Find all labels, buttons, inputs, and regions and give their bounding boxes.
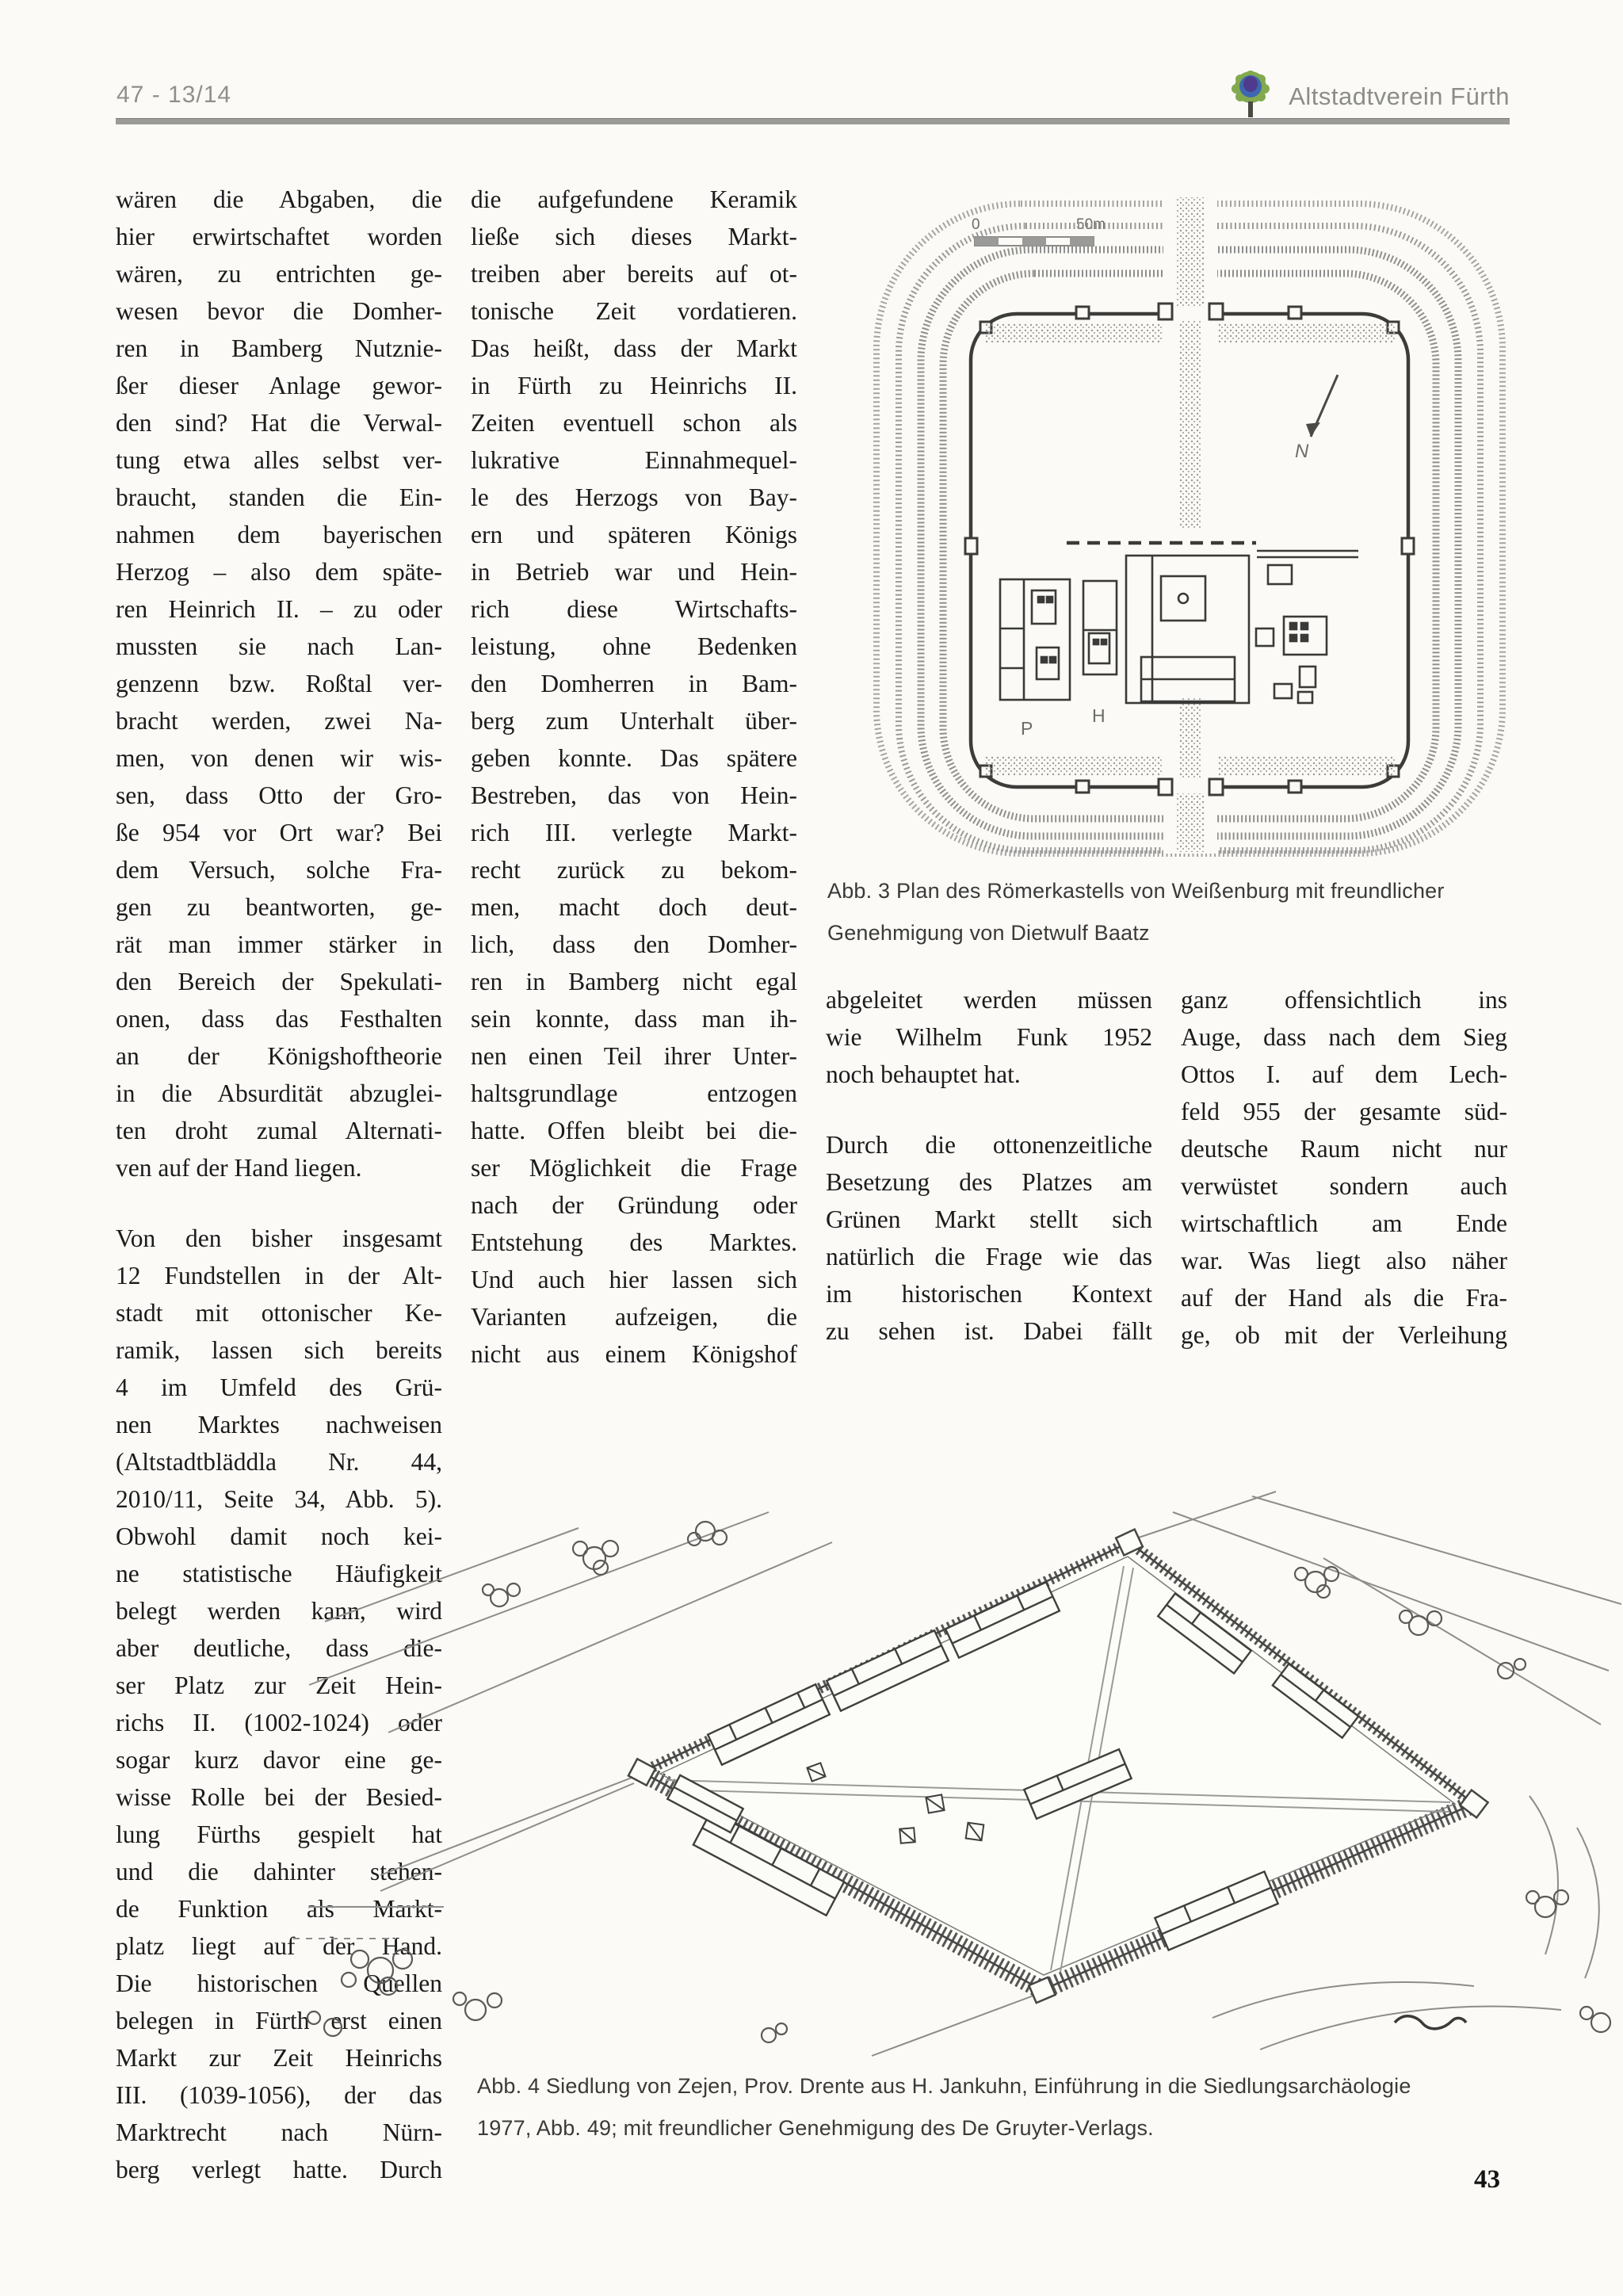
siedlung-drawing-figure — [262, 1463, 1621, 2059]
text-line: berg zum Unterhalt über- — [471, 702, 797, 739]
text-line: treiben aber bereits auf ot- — [471, 255, 797, 292]
text-column-4: ganz offensichtlich insAuge, dass nach d… — [1181, 981, 1507, 1354]
text-line: Marktrecht nach Nürn- — [116, 2114, 442, 2151]
text-line: sein konnte, dass man ih- — [471, 1000, 797, 1037]
text-line: war. Was liegt also näher — [1181, 1242, 1507, 1279]
page-number: 43 — [1474, 2165, 1500, 2195]
altstadtverein-tree-logo — [1230, 70, 1273, 120]
text-line: noch behauptet hat. — [826, 1056, 1152, 1093]
figure4-caption: Abb. 4 Siedlung von Zejen, Prov. Drente … — [477, 2065, 1602, 2149]
text-line: recht zurück zu bekom- — [471, 851, 797, 888]
text-line: wirtschaftlich am Ende — [1181, 1205, 1507, 1242]
text-line: ßer dieser Anlage gewor- — [116, 367, 442, 404]
text-line: tonische Zeit vordatieren. — [471, 292, 797, 330]
text-line: wie Wilhelm Funk 1952 — [826, 1018, 1152, 1056]
north-gate-opening — [1170, 308, 1211, 320]
figure4-caption-line1: Abb. 4 Siedlung von Zejen, Prov. Drente … — [477, 2065, 1602, 2107]
text-line: genzenn bzw. Roßtal ver- — [116, 665, 442, 702]
text-line: 4 im Umfeld des Grü- — [116, 1369, 442, 1406]
text-line: nahmen dem bayerischen — [116, 516, 442, 553]
text-line: ten droht zumal Alternati- — [116, 1112, 442, 1149]
text-line: berg verlegt hatte. Durch — [116, 2151, 442, 2188]
north-label: N — [1295, 441, 1309, 462]
text-line: wären, zu entrichten ge- — [116, 255, 442, 292]
text-line: nicht aus einem Königshof — [471, 1335, 797, 1373]
text-line: tung etwa alles selbst ver- — [116, 441, 442, 479]
text-line: leistung, ohne Bedenken — [471, 628, 797, 665]
text-line: rät man immer stärker in — [116, 926, 442, 963]
signature-mark — [1395, 2016, 1466, 2029]
text-line: le des Herzogs von Bay- — [471, 479, 797, 516]
text-line: Herzog – also dem späte- — [116, 553, 442, 590]
text-line: Auge, dass nach dem Sieg — [1181, 1018, 1507, 1056]
text-line: ße 954 vor Ort war? Bei — [116, 814, 442, 851]
text-line: ven auf der Hand liegen. — [116, 1149, 442, 1186]
text-line: ren in Bamberg Nutznie- — [116, 330, 442, 367]
text-line: ramik, lassen sich bereits — [116, 1331, 442, 1369]
text-line: sen, dass Otto der Gro- — [116, 777, 442, 814]
figure3-caption-line2: Genehmigung von Dietwulf Baatz — [827, 912, 1509, 954]
text-line: auf der Hand als die Fra- — [1181, 1279, 1507, 1316]
text-line: nen einen Teil ihrer Unter- — [471, 1037, 797, 1075]
text-line: Besetzung des Platzes am — [826, 1163, 1152, 1201]
text-line: Von den bisher insgesamt — [116, 1220, 442, 1257]
scale-zero-label: 0 — [972, 216, 980, 233]
text-line: nen Marktes nachweisen — [116, 1406, 442, 1443]
text-line: gen zu beantworten, ge- — [116, 888, 442, 926]
text-line: in Fürth zu Heinrichs II. — [471, 367, 797, 404]
paragraph: wären die Abgaben, diehier erwirtschafte… — [116, 181, 442, 1186]
text-line: Und auch hier lassen sich — [471, 1261, 797, 1298]
text-line: Grünen Markt stellt sich — [826, 1201, 1152, 1238]
text-line: den Domherren in Bam- — [471, 665, 797, 702]
header-rule — [116, 118, 1510, 124]
text-line: men, von denen wir wis- — [116, 739, 442, 777]
text-line: zu sehen ist. Dabei fällt — [826, 1312, 1152, 1350]
text-line: nach der Gründung oder — [471, 1186, 797, 1224]
text-line: ren in Bamberg nicht egal — [471, 963, 797, 1000]
text-line: deutsche Raum nicht nur — [1181, 1130, 1507, 1167]
tree-icon — [1232, 71, 1270, 117]
text-line: ren Heinrich II. – zu oder — [116, 590, 442, 628]
text-line: den sind? Hat die Verwal- — [116, 404, 442, 441]
text-line: Durch die ottonenzeitliche — [826, 1126, 1152, 1163]
text-line: den Bereich der Spekulati- — [116, 963, 442, 1000]
text-line: III. (1039-1056), der das — [116, 2076, 442, 2114]
text-line: in Betrieb war und Hein- — [471, 553, 797, 590]
text-line: natürlich die Frage wie das — [826, 1238, 1152, 1275]
text-line: in die Absurdität abzuglei- — [116, 1075, 442, 1112]
brand-title: Altstadtverein Fürth — [1289, 82, 1510, 111]
text-line: ser Möglichkeit die Frage — [471, 1149, 797, 1186]
text-line: 12 Fundstellen in der Alt- — [116, 1257, 442, 1294]
text-line: onen, dass das Festhalten — [116, 1000, 442, 1037]
text-line: dem Versuch, solche Fra- — [116, 851, 442, 888]
text-line: hatte. Offen bleibt bei die- — [471, 1112, 797, 1149]
text-line: die aufgefundene Keramik — [471, 181, 797, 218]
text-line: ge, ob mit der Verleihung — [1181, 1316, 1507, 1354]
magazine-page: 47 - 13/14 Altstadtverein Fürth wären di… — [0, 0, 1623, 2296]
text-line: bracht werden, zwei Na- — [116, 702, 442, 739]
text-line: wesen bevor die Domher- — [116, 292, 442, 330]
paragraph: die aufgefundene Keramikließe sich diese… — [471, 181, 797, 1373]
text-line: rich III. verlegte Markt- — [471, 814, 797, 851]
text-line: lukrative Einnahmequel- — [471, 441, 797, 479]
text-line: feld 955 der gesamte süd- — [1181, 1093, 1507, 1130]
text-line: hier erwirtschaftet worden — [116, 218, 442, 255]
south-gate-opening — [1170, 781, 1211, 793]
figure4-caption-line2: 1977, Abb. 49; mit freundlicher Genehmig… — [477, 2107, 1602, 2149]
issue-number: 47 - 13/14 — [116, 82, 231, 109]
text-line: ern und späteren Königs — [471, 516, 797, 553]
kastell-plan-figure: 0 50m — [824, 185, 1512, 857]
text-line: stadt mit ottonischer Ke- — [116, 1294, 442, 1331]
text-line: ließe sich dieses Markt- — [471, 218, 797, 255]
text-line: Zeiten eventuell schon als — [471, 404, 797, 441]
text-line: Das heißt, dass der Markt — [471, 330, 797, 367]
paragraph: Durch die ottonenzeitlicheBesetzung des … — [826, 1126, 1152, 1350]
text-line: rich diese Wirtschafts- — [471, 590, 797, 628]
text-line: ganz offensichtlich ins — [1181, 981, 1507, 1018]
text-line: an der Königshoftheorie — [116, 1037, 442, 1075]
text-line: braucht, standen die Ein- — [116, 479, 442, 516]
text-column-3: abgeleitet werden müssenwie Wilhelm Funk… — [826, 981, 1152, 1350]
paragraph: abgeleitet werden müssenwie Wilhelm Funk… — [826, 981, 1152, 1093]
figure3-caption: Abb. 3 Plan des Römerkastells von Weißen… — [827, 870, 1509, 954]
text-line: mussten sie nach Lan- — [116, 628, 442, 665]
text-line: Ottos I. auf dem Lech- — [1181, 1056, 1507, 1093]
letter-p: P — [1021, 718, 1033, 739]
text-line: abgeleitet werden müssen — [826, 981, 1152, 1018]
letter-h: H — [1092, 705, 1106, 726]
text-line: men, macht doch deut- — [471, 888, 797, 926]
text-line: Varianten aufzeigen, die — [471, 1298, 797, 1335]
text-line: lich, dass den Domher- — [471, 926, 797, 963]
text-line: Bestreben, das von Hein- — [471, 777, 797, 814]
paragraph: ganz offensichtlich insAuge, dass nach d… — [1181, 981, 1507, 1354]
text-line: wären die Abgaben, die — [116, 181, 442, 218]
text-line: Entstehung des Marktes. — [471, 1224, 797, 1261]
figure3-caption-line1: Abb. 3 Plan des Römerkastells von Weißen… — [827, 870, 1509, 912]
text-line: geben konnte. Das spätere — [471, 739, 797, 777]
scale-bar: 0 50m — [972, 216, 1106, 246]
text-line: verwüstet sondern auch — [1181, 1167, 1507, 1205]
text-column-2: die aufgefundene Keramikließe sich diese… — [471, 181, 797, 1373]
text-line: im historischen Kontext — [826, 1275, 1152, 1312]
text-line: haltsgrundlage entzogen — [471, 1075, 797, 1112]
